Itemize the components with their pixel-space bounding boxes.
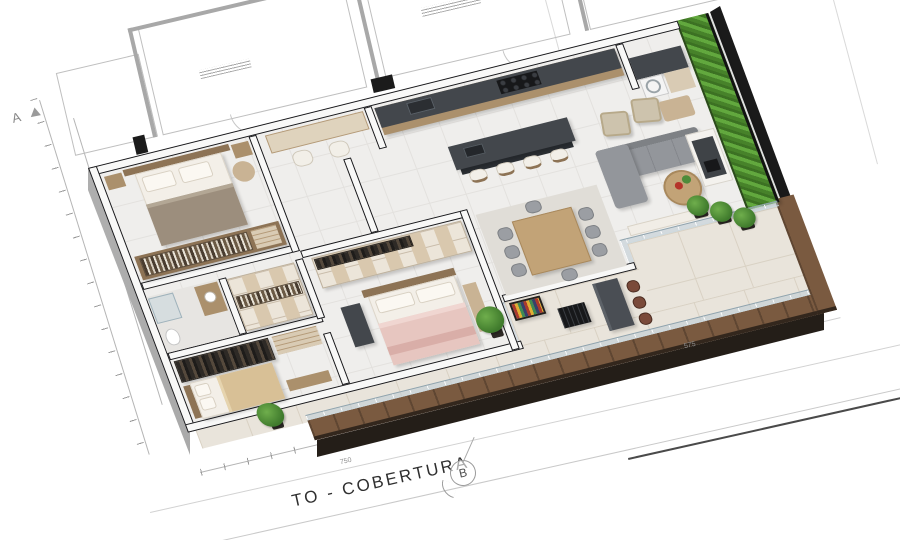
- armchair: [599, 111, 631, 137]
- sheet-frame-line: [628, 395, 900, 460]
- armchair: [630, 97, 662, 123]
- dimension-label: 750: [339, 457, 352, 466]
- floor-plan-sheet: 750 575 A: [0, 0, 900, 540]
- section-marker-b-label: B: [458, 465, 469, 480]
